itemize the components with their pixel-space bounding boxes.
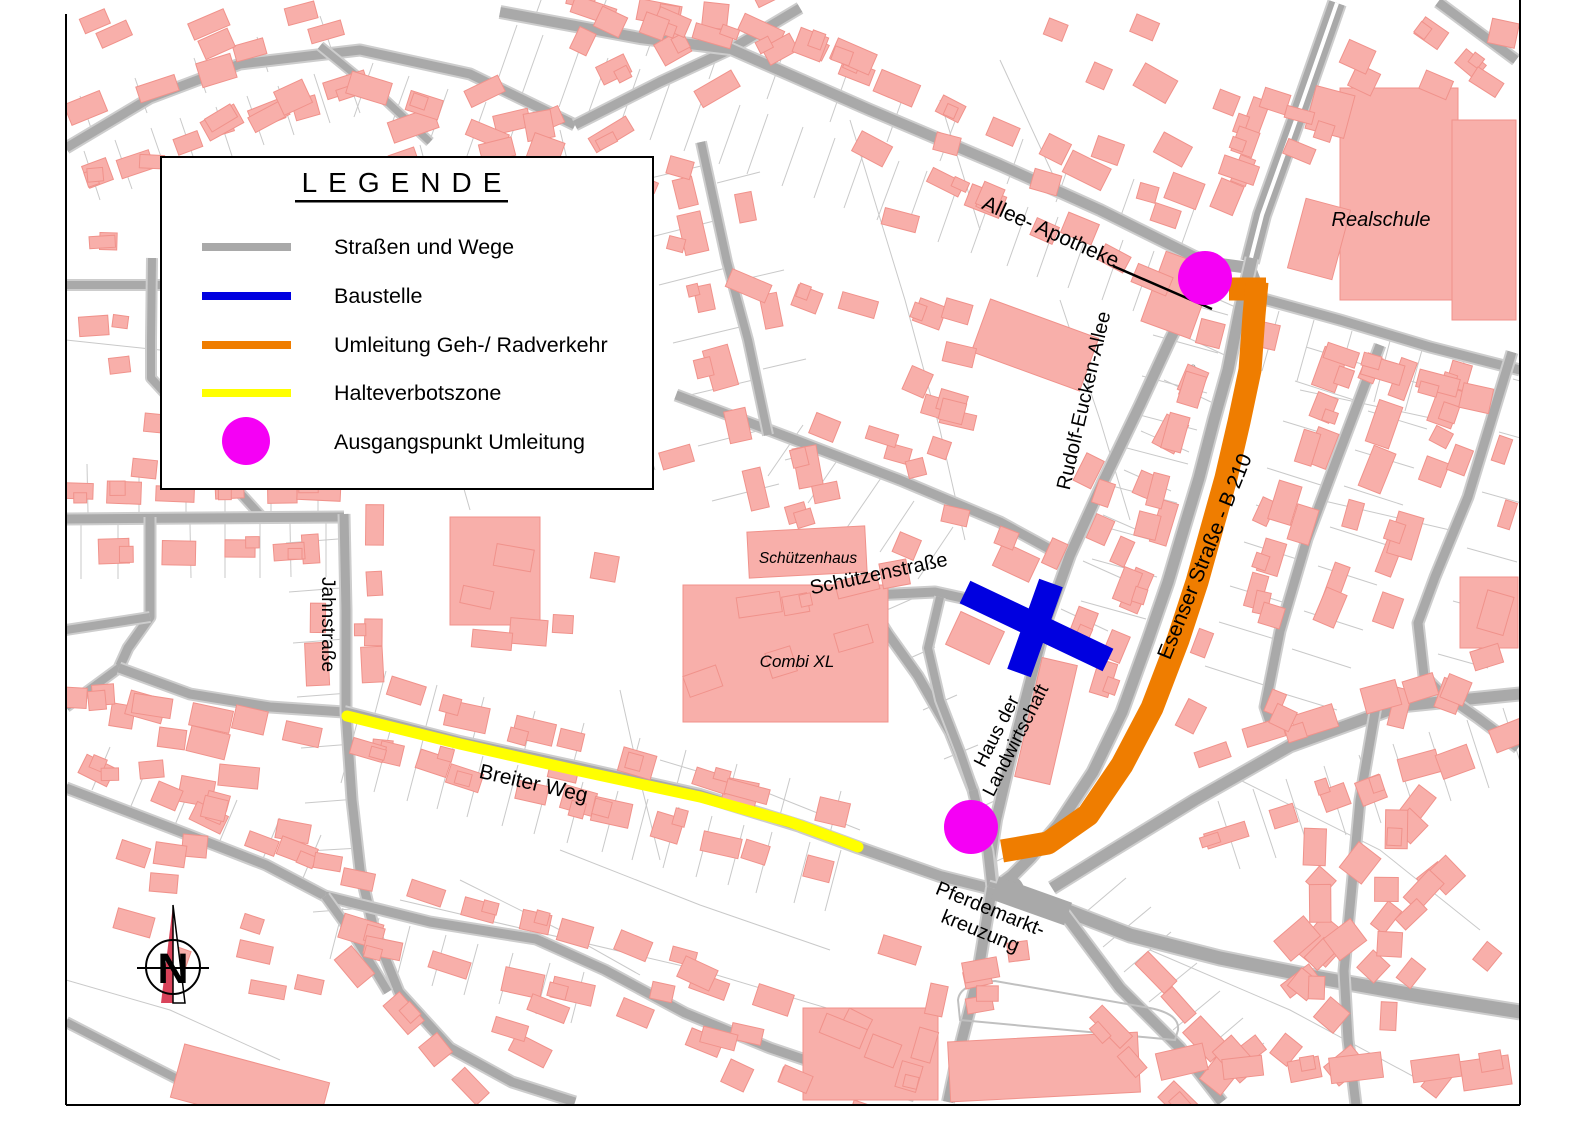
svg-text:LEGENDE: LEGENDE — [302, 167, 513, 198]
svg-text:Baustelle: Baustelle — [334, 284, 422, 308]
svg-text:Ausgangspunkt Umleitung: Ausgangspunkt Umleitung — [334, 430, 585, 454]
svg-text:Schützenhaus: Schützenhaus — [759, 550, 857, 567]
svg-text:Straßen und Wege: Straßen und Wege — [334, 235, 514, 259]
svg-text:Umleitung Geh-/ Radverkehr: Umleitung Geh-/ Radverkehr — [334, 333, 608, 357]
svg-text:Combi XL: Combi XL — [760, 652, 835, 671]
svg-text:Halteverbotszone: Halteverbotszone — [334, 381, 501, 405]
svg-text:Jahnstraße: Jahnstraße — [317, 577, 338, 672]
svg-text:Realschule: Realschule — [1332, 209, 1431, 231]
svg-text:N: N — [157, 945, 188, 993]
